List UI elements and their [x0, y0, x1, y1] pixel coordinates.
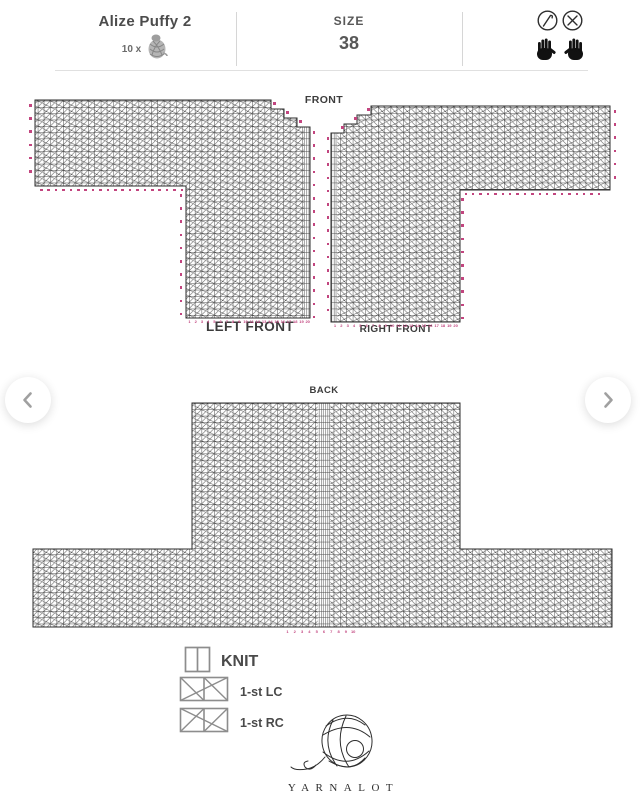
legend-item-lc: 1-st LC: [179, 676, 282, 707]
crochet-hook-circle-icon: [537, 10, 558, 36]
right-cross-icon: [179, 707, 230, 738]
brand-logo: YARNALOT: [268, 712, 413, 794]
row-markers: 1234567891011121314151617181920123456789…: [0, 0, 643, 800]
chevron-right-icon: [597, 389, 619, 411]
knitting-charts: [0, 0, 643, 800]
legend-label: 1-st LC: [240, 685, 282, 699]
yarn-skein-icon: [146, 33, 168, 65]
yarn-quantity: 10 x: [55, 33, 235, 65]
size-label: SIZE: [236, 14, 462, 28]
right-front-label: RIGHT FRONT: [330, 324, 462, 335]
size-value: 38: [236, 33, 462, 54]
knitting-pattern-page: Alize Puffy 2 10 x SIZE 38: [0, 0, 643, 800]
header-rule: [55, 70, 588, 71]
back-chart: [33, 403, 612, 627]
left-hand-icon: [533, 37, 558, 68]
front-title: FRONT: [289, 94, 359, 106]
previous-page-button[interactable]: [5, 377, 51, 423]
left-cross-icon: [179, 676, 230, 707]
yarn-name: Alize Puffy 2: [55, 13, 235, 30]
back-title: BACK: [289, 385, 359, 396]
right-front-chart: [331, 106, 610, 322]
header-divider: [462, 12, 463, 66]
yarn-ball-logo-icon: [289, 712, 393, 776]
left-front-label: LEFT FRONT: [175, 319, 325, 334]
craft-icons: [505, 10, 615, 68]
crossed-needles-circle-icon: [562, 10, 583, 36]
yarn-quantity-label: 10 x: [122, 44, 141, 55]
left-front-chart: [35, 100, 310, 318]
chevron-left-icon: [17, 389, 39, 411]
legend-item-knit: KNIT: [184, 646, 258, 678]
legend-label: KNIT: [221, 653, 258, 671]
next-page-button[interactable]: [585, 377, 631, 423]
right-hand-icon: [562, 37, 587, 68]
knit-cell-icon: [184, 646, 211, 678]
brand-name: YARNALOT: [268, 782, 413, 794]
